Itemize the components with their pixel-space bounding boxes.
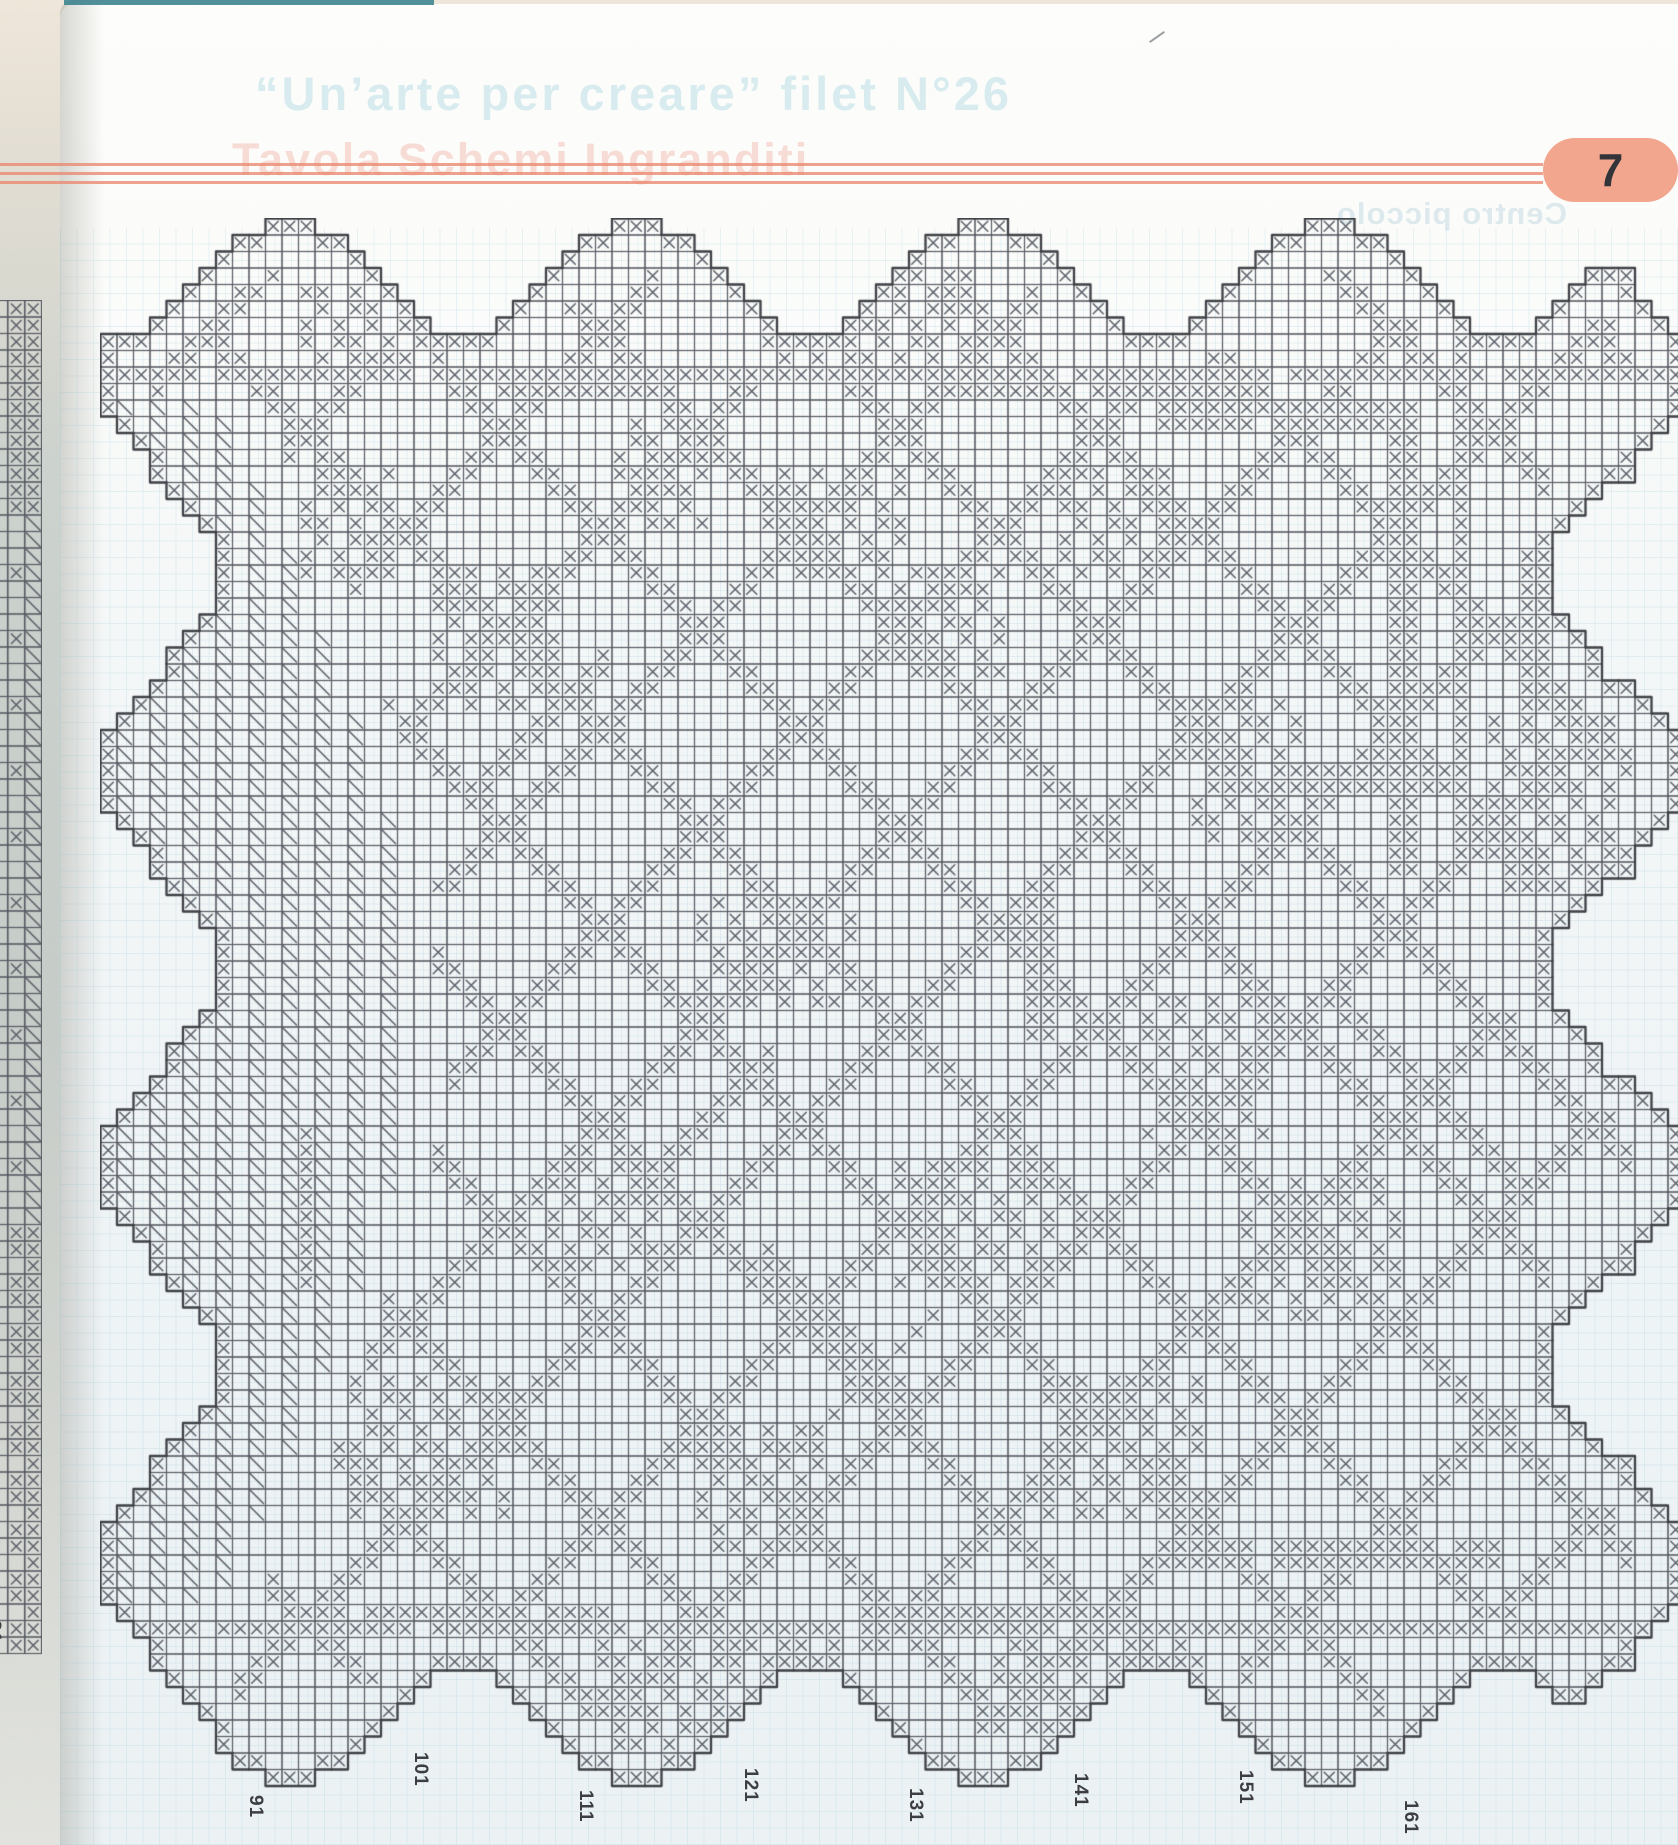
scan-edge-artifact (64, 0, 434, 5)
pink-rule-line-1 (0, 163, 1543, 166)
column-number-label: 121 (739, 1768, 761, 1803)
pink-rule-line-3 (0, 181, 1543, 184)
column-number-label: 101 (409, 1752, 431, 1787)
filet-chart-canvas (100, 218, 1678, 1788)
column-number-label: 131 (904, 1788, 926, 1823)
page-number: 7 (1598, 143, 1624, 197)
page-number-badge: 7 (1543, 138, 1678, 202)
column-number-label: 161 (1399, 1800, 1421, 1835)
column-number-label: 111 (574, 1790, 596, 1823)
side-column-number-label: 81 (0, 1620, 4, 1643)
column-number-label: 91 (244, 1795, 266, 1818)
scanned-book-page: { "page": { "number_label": "7" }, "head… (0, 0, 1678, 1845)
ghost-title: “Un’arte per creare” filet N°26 (255, 66, 1012, 121)
pink-rule-line-2 (0, 172, 1543, 175)
previous-page-chart-sliver (0, 300, 42, 1660)
column-number-label: 141 (1069, 1773, 1091, 1808)
column-number-label: 151 (1234, 1770, 1256, 1805)
ghost-subtitle: Tavola Schemi Ingranditi (232, 134, 809, 186)
